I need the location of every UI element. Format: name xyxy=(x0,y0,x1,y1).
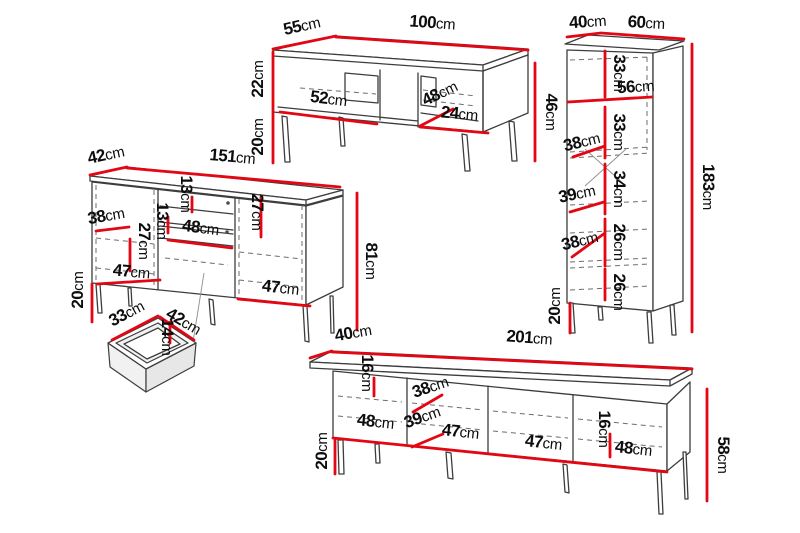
dim-tv-stand-depth: 40cm xyxy=(333,320,373,345)
dim-coffee-table-height: 46cm xyxy=(542,93,561,130)
coffee-table: 55cm 100cm 22cm 20cm 52cm 48cm 24cm 46cm xyxy=(248,11,561,171)
sideboard-drawer-knob-top xyxy=(226,201,230,205)
furniture-dimensions-diagram: 55cm 100cm 22cm 20cm 52cm 48cm 24cm 46cm… xyxy=(0,0,800,533)
dim-cabinet-leg-height: 20cm xyxy=(545,287,564,324)
dim-cabinet-shelf-height-5: 26cm xyxy=(610,273,629,310)
dim-drawer-height: 14cm xyxy=(158,318,177,355)
dim-sideboard-drawer-height: 13cm xyxy=(177,175,196,212)
dim-sideboard-total-height: 81cm xyxy=(362,242,381,279)
diagram-canvas: 55cm 100cm 22cm 20cm 52cm 48cm 24cm 46cm… xyxy=(0,0,800,533)
dim-sideboard-left-shelf-height: 27cm xyxy=(135,222,154,259)
dim-tv-stand-niche-height-right: 16cm xyxy=(595,410,614,447)
dim-cabinet-shelf-height-2: 33cm xyxy=(610,113,629,150)
dim-tv-stand-total-height: 58cm xyxy=(714,436,733,473)
dim-sideboard-depth: 42cm xyxy=(86,141,126,167)
dim-cabinet-shelf-width: 56cm xyxy=(616,76,654,98)
dim-coffee-table-niche-width: 24cm xyxy=(440,102,479,124)
dim-sideboard-leg-height: 20cm xyxy=(68,271,87,308)
dim-tv-stand-niche-height-left: 16cm xyxy=(358,354,377,391)
sideboard-drawer-knob-bottom xyxy=(225,230,229,234)
dim-cabinet-shelf-height-3: 34cm xyxy=(610,170,629,207)
dim-coffee-table-shelf-width: 52cm xyxy=(309,87,348,110)
tall-cabinet: 40cm 60cm 33cm 56cm 33cm 38cm 34cm 39cm … xyxy=(545,11,718,343)
tv-stand: 40cm 201cm 16cm 38cm 48cm 39cm 47cm 47cm… xyxy=(310,320,733,514)
sideboard-side-panel xyxy=(306,196,343,305)
dim-cabinet-width: 60cm xyxy=(627,12,665,33)
dim-cabinet-depth: 40cm xyxy=(568,11,606,33)
dim-cabinet-total-height: 183cm xyxy=(699,164,718,210)
dim-tv-stand-leg-height: 20cm xyxy=(312,432,331,469)
dim-cabinet-shelf-height-4: 26cm xyxy=(610,223,629,260)
cabinet-side-panel xyxy=(653,46,683,311)
dim-sideboard-niche-height: 13cm xyxy=(153,202,172,239)
dim-sideboard-right-shelf-height: 27cm xyxy=(248,193,267,230)
dim-coffee-table-width: 100cm xyxy=(409,11,456,33)
dim-coffee-table-body-height: 22cm xyxy=(248,60,267,97)
dim-coffee-table-depth: 55cm xyxy=(282,12,322,39)
dim-tv-stand-width: 201cm xyxy=(506,326,553,348)
